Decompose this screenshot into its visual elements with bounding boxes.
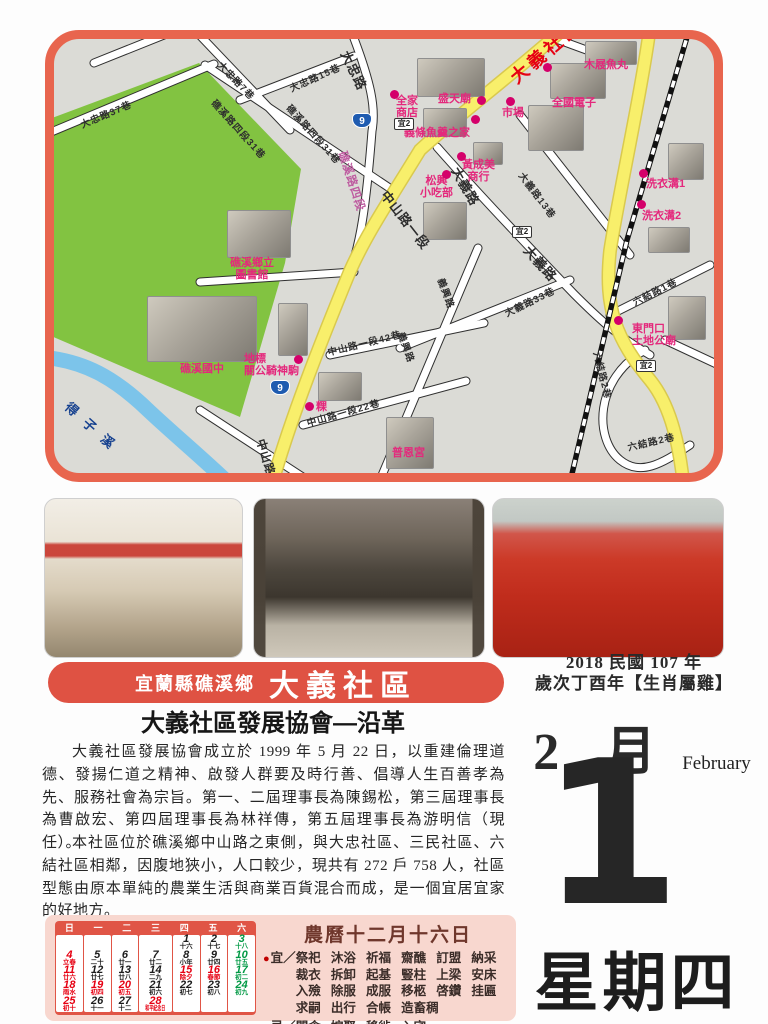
lunar-date-title: 農曆十二月十六日 [263,920,513,947]
mini-month-calendar: 日一二三四五六 4立春11廿六18雨水25初十5二十12廿七19初四26十一6廿… [55,921,256,1015]
poi-label-rice-cake: 粿 [316,401,327,413]
inauspicious-key: ●忌／ [263,1019,296,1024]
weekday-label: 星期四 [505,932,768,1024]
calendar-weekday-row: 日一二三四五六 [55,921,256,935]
community-title-banner: 宜蘭縣礁溪鄉 大義社區 [48,662,504,703]
calendar-cell: 27十二 [112,997,139,1012]
poi-label-shengtian: 盛天廟 [438,93,471,105]
event-photo-outdoor-banquet [492,498,724,658]
calendar-cell: 26十一 [84,997,111,1012]
map-roads-svg [54,39,714,475]
poi-dot [543,63,552,72]
calendar-cell [228,997,255,1012]
county-route-yi2-badge: 宜2 [394,118,414,130]
calendar-weekday-header: 二 [112,921,141,935]
article-paragraph-2: 本社區位於礁溪鄉中山路之東側，與大忠社區、三民社區、六結社區相鄰，因腹地狹小，人… [42,832,505,923]
poi-dot [639,169,648,178]
calendar-column: 4立春11廿六18雨水25初十 [56,935,83,1012]
map-photo-market-building [528,105,584,151]
poi-dot [506,97,515,106]
auspicious-terms: 祭祀 沐浴 祈福 齋醮 訂盟 納采 裁衣 拆卸 起基 豎柱 上梁 安床 入殮 除… [296,950,513,1016]
poi-dot [457,152,466,161]
poi-label-family-mart: 全家 商店 [396,95,418,120]
almanac-panel: 日一二三四五六 4立春11廿六18雨水25初十5二十12廿七19初四26十一6廿… [45,915,516,1021]
poi-label-wash2: 洗衣溝2 [642,210,681,222]
calendar-column: 7廿二14二九21初六28和平紀念日 [139,935,172,1012]
community-map: 大忠路7巷 大忠路37巷 大忠路15巷 大忠路 礁溪路四段31巷 礁溪路四段31… [45,30,723,482]
poi-label-market: 市場 [502,107,524,119]
almanac-block: 農曆十二月十六日 ●宜／ 祭祀 沐浴 祈福 齋醮 訂盟 納采 裁衣 拆卸 起基 … [263,920,513,1024]
poi-label-eastgate: 東門口 土地公廟 [632,323,676,348]
calendar-day-sublabel: 初八 [207,990,220,996]
calendar-page: 大忠路7巷 大忠路37巷 大忠路15巷 大忠路 礁溪路四段31巷 礁溪路四段31… [0,0,768,1024]
poi-label-puen-temple: 普恩宮 [392,447,425,459]
map-photo-wash-ditch-2 [648,227,690,253]
map-photo-library [227,210,291,258]
calendar-day-sublabel: 十二 [118,1006,131,1012]
poi-dot [294,355,303,364]
calendar-column: 6廿一13廿八20初五27十二 [112,935,139,1012]
poi-label-huang-store: 黃成美 商行 [462,159,495,184]
calendar-weekday-header: 三 [141,921,170,935]
poi-label-school: 礁溪國中 [180,363,224,375]
calendar-grid: 4立春11廿六18雨水25初十5二十12廿七19初四26十一6廿一13廿八20初… [55,935,256,1013]
calendar-cell: 22初七 [173,981,200,996]
poi-label-fish-soup: 義條魚羹之家 [404,127,470,139]
poi-dot [305,402,314,411]
calendar-column: 2十七9廿四16春節23初八 [201,935,228,1012]
calendar-weekday-header: 日 [55,921,84,935]
calendar-day-sublabel: 初九 [235,990,248,996]
auspicious-row: ●宜／ 祭祀 沐浴 祈福 齋醮 訂盟 納采 裁衣 拆卸 起基 豎柱 上梁 安床 … [263,950,513,1016]
red-dot-icon: ● [263,953,270,965]
event-photo-meeting-hall [44,498,243,658]
map-canvas: 大忠路7巷 大忠路37巷 大忠路15巷 大忠路 礁溪路四段31巷 礁溪路四段31… [54,39,714,473]
calendar-cell [173,997,200,1012]
county-route-yi2-badge: 宜2 [512,226,532,238]
poi-label-muji: 木屐魚丸 [584,59,628,71]
calendar-day-sublabel: 初七 [180,990,193,996]
year-line: 2018 民國 107 年 [505,652,763,673]
calendar-cell: 24初九 [228,981,255,996]
calendar-column: 3十八10廿五17初二24初九 [228,935,255,1012]
calendar-column: 5二十12廿七19初四26十一 [84,935,111,1012]
map-photo-puen-temple [386,417,434,469]
poi-dot [637,200,646,209]
map-photo-rice-cake [318,372,362,401]
calendar-cell: 23初八 [201,981,228,996]
calendar-column: 1十六8小年15除夕22初七 [173,935,200,1012]
banner-region: 宜蘭縣礁溪鄉 [135,670,255,696]
poi-dot [442,170,451,179]
calendar-weekday-header: 一 [84,921,113,935]
calendar-cell [201,997,228,1012]
map-photo-junior-high [147,296,257,362]
poi-dot [471,115,480,124]
inauspicious-row: ●忌／ 開倉 嫁娶 移徙 入宅 [263,1019,513,1024]
calendar-cell: 25初十 [56,997,83,1012]
auspicious-key: ●宜／ [263,950,296,1016]
poi-label-landmark: 地標 關公騎神駒 [244,353,299,378]
county-route-yi2-badge: 宜2 [636,360,656,372]
calendar-cell: 28和平紀念日 [139,997,172,1012]
poi-dot [390,90,399,99]
day-number: 1 [505,756,717,914]
inauspicious-terms: 開倉 嫁娶 移徙 入宅 [296,1019,426,1024]
poi-dot [614,316,623,325]
poi-label-library: 礁溪鄉立 圖書館 [230,257,274,282]
map-photo-wash-ditch-1 [668,143,704,180]
event-photo-temple-offering [253,498,485,658]
calendar-day-sublabel: 十一 [91,1006,104,1012]
article-heading: 大義社區發展協會—沿革 [42,703,504,738]
poi-label-wash1: 洗衣溝1 [646,178,685,190]
map-photo-guangong-statue [278,303,308,356]
poi-label-elife: 全國電子 [552,97,596,109]
zodiac-line: 歲次丁酉年【生肖屬雞】 [505,673,763,694]
calendar-day-sublabel: 和平紀念日 [145,1006,165,1012]
poi-dot [477,96,486,105]
calendar-day-sublabel: 初十 [63,1006,76,1012]
banner-community-name: 大義社區 [269,661,417,705]
map-photo-shengtian-temple [417,58,485,97]
